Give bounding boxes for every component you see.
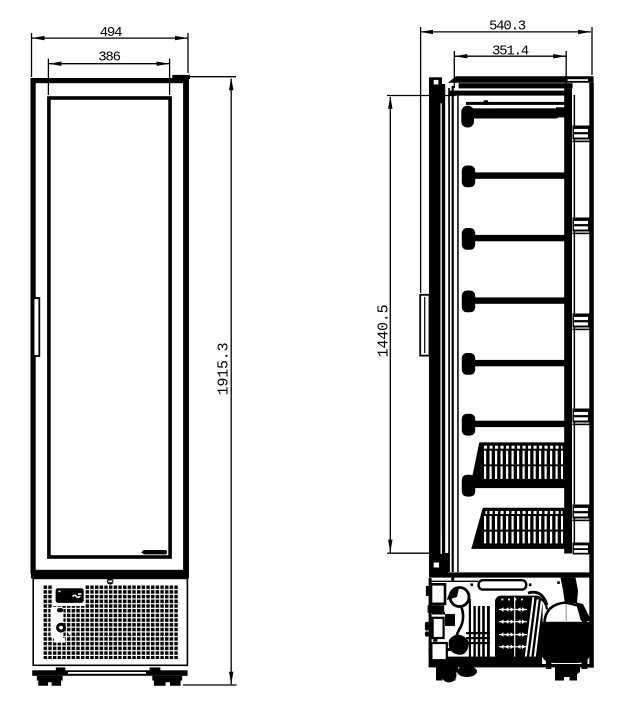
svg-text:1915.3: 1915.3 xyxy=(216,342,233,395)
svg-text:351.4: 351.4 xyxy=(492,44,529,60)
